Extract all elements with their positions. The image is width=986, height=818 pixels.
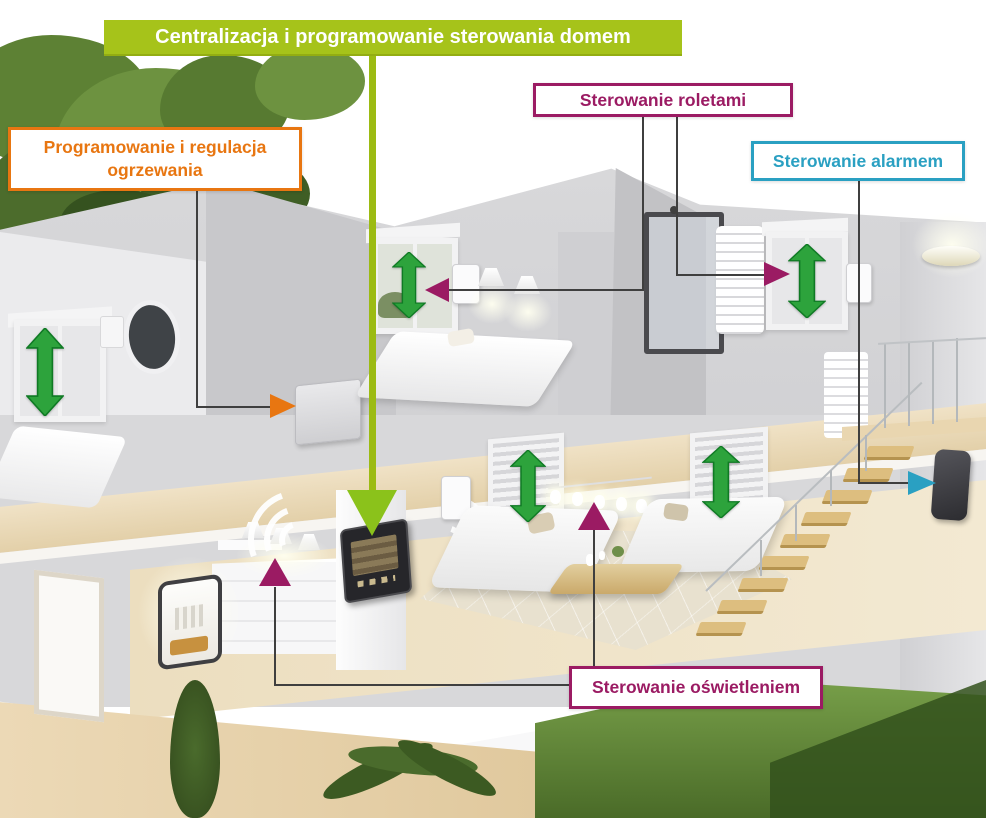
central-control-banner: Centralizacja i programowanie sterowania… [104,20,682,56]
lighting-callout: Sterowanie oświetleniem [569,666,823,709]
sofa-pillow [663,502,689,521]
shutters-pointer-left-icon [425,278,449,302]
lighting-callout-label: Sterowanie oświetleniem [592,676,800,699]
railing-post [830,470,832,506]
coffee-table [547,564,684,594]
railing-post [795,505,797,541]
shutters-callout-label: Sterowanie roletami [580,89,746,112]
shutters-connector-line [642,115,644,291]
stair-step [842,468,893,482]
wall-lamp [922,246,980,266]
entry-door [34,570,104,723]
heating-callout: Programowanie i regulacja ogrzewania [8,127,302,191]
heating-connector-line [196,189,198,408]
stair-step [779,534,830,548]
alarm-callout: Sterowanie alarmem [751,141,965,181]
lighting-pointer-up-icon [259,558,291,586]
shutters-connector-line [676,274,766,276]
lighting-pointer-up-icon [578,502,610,530]
touchscreen-buttons [357,575,395,588]
diagram-canvas: Centralizacja i programowanie sterowania… [0,0,986,818]
shutter-double-arrow-icon [702,446,740,518]
shutter-double-arrow-icon [26,328,64,416]
shutters-pointer-right-icon [764,262,790,286]
table-vase [599,551,605,560]
shutters-connector-line [676,115,678,276]
central-arrow-shaft [369,50,376,492]
railing-post [760,540,762,576]
connector-junction-dot [670,206,678,214]
balcony-rod [932,340,934,424]
shutters-connector-line [447,289,644,291]
siren-flash-band [170,635,208,655]
lamp-glow [504,292,552,332]
heating-pointer-icon [270,394,296,418]
shutter-double-arrow-icon [392,252,426,318]
balcony-rod [956,338,958,422]
heating-connector-line [196,406,272,408]
touchscreen-display [351,534,399,576]
railing-post [865,435,867,471]
lighting-connector-line [274,587,276,686]
wall-lamp-glow [912,212,986,278]
stair-step [863,446,914,460]
alarm-callout-label: Sterowanie alarmem [773,150,943,173]
electric-heater [295,379,361,446]
towel-radiator [716,226,764,334]
outdoor-alarm-siren [158,574,222,671]
lighting-connector-line [593,529,595,669]
stair-step [800,512,851,526]
table-plant [612,546,624,557]
stair-step [758,556,809,570]
alarm-connector-line [858,482,910,484]
stair-step [737,578,788,592]
balcony-rod [908,342,910,426]
shutters-callout: Sterowanie roletami [533,83,793,117]
stair-step [716,600,767,614]
tree-foliage [255,45,365,120]
balcony-rod [884,344,886,428]
shutter-double-arrow-icon [510,450,546,522]
alarm-keypad-device [931,449,972,521]
alarm-connector-line [858,179,860,484]
shutter-control-panel [100,316,124,348]
alarm-pointer-icon [908,471,936,495]
central-down-arrow-icon [347,490,397,536]
shower-cabin [644,212,724,354]
interior-wall [558,232,614,432]
shutter-double-arrow-icon [788,244,826,318]
siren-vents [175,604,203,630]
pendant-bulb [616,497,627,511]
heating-callout-label: Programowanie i regulacja ogrzewania [19,136,291,182]
pendant-bulb [550,490,561,504]
lighting-connector-line [274,684,572,686]
stair-step [695,622,746,636]
